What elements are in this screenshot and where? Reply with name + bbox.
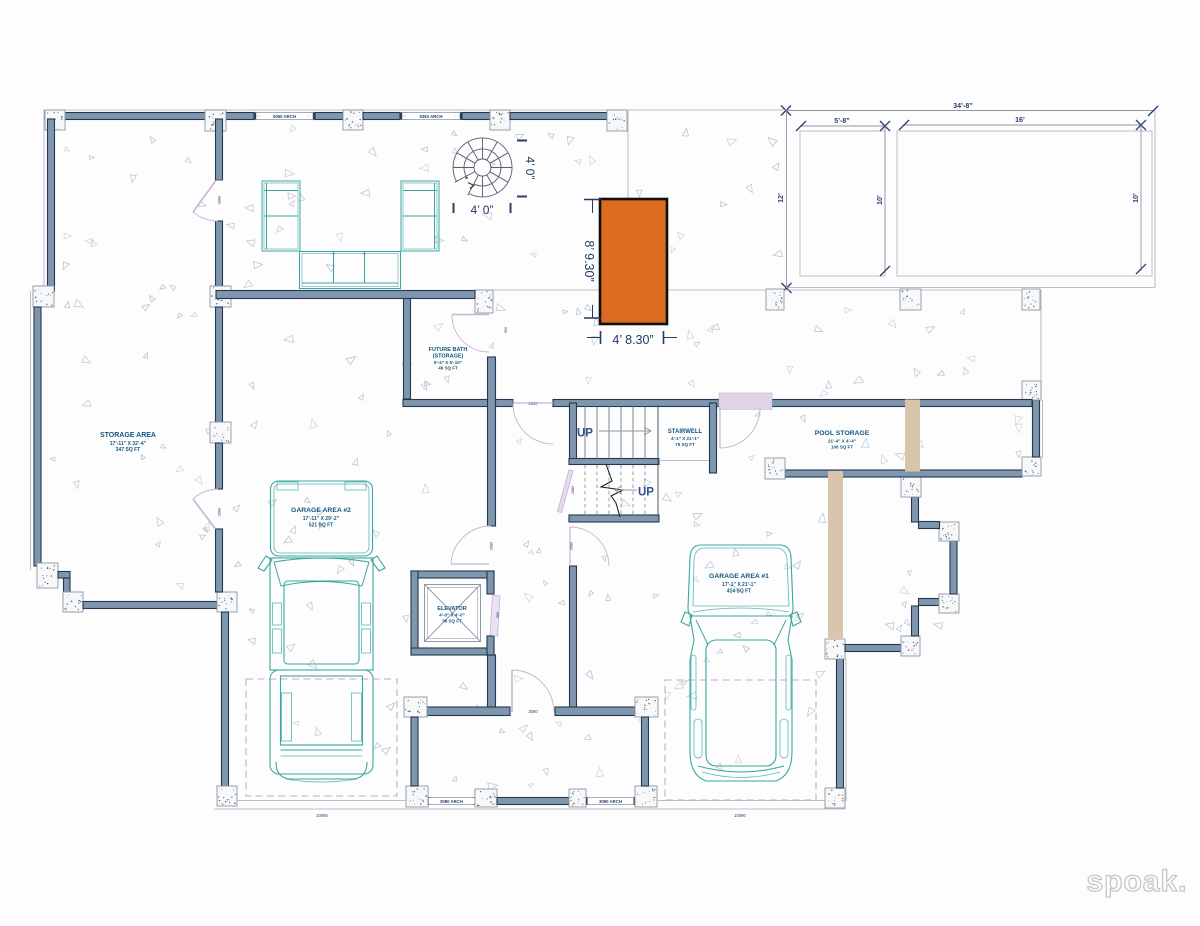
svg-text:17’-11” X 29’-2”: 17’-11” X 29’-2” [303, 516, 340, 522]
svg-text:UP: UP [638, 487, 654, 499]
svg-text:36 SQ FT: 36 SQ FT [442, 619, 462, 624]
svg-text:3080 ARCH: 3080 ARCH [440, 799, 463, 804]
svg-text:8’ 9.30”: 8’ 9.30” [582, 240, 596, 281]
svg-text:3090 ARCH: 3090 ARCH [599, 799, 622, 804]
svg-text:5383 ARCH: 5383 ARCH [419, 114, 442, 119]
svg-text:16’: 16’ [1015, 117, 1025, 124]
svg-text:GARAGE AREA #1: GARAGE AREA #1 [709, 573, 769, 580]
svg-text:spoak.: spoak. [1086, 865, 1187, 898]
svg-text:75 SQ FT: 75 SQ FT [675, 442, 695, 447]
svg-text:10090: 10090 [734, 813, 746, 818]
svg-text:4’-1” X 21’-1”: 4’-1” X 21’-1” [671, 436, 699, 441]
svg-text:414 SQ FT: 414 SQ FT [727, 589, 751, 595]
svg-text:4’ 8.30”: 4’ 8.30” [612, 333, 653, 347]
svg-text:521 SQ FT: 521 SQ FT [309, 523, 333, 529]
svg-text:2680: 2680 [218, 508, 222, 516]
svg-text:10’: 10’ [877, 195, 884, 205]
svg-text:4’-0” X 4’-0”: 4’-0” X 4’-0” [439, 613, 465, 618]
svg-text:900: 900 [504, 327, 508, 333]
svg-text:STORAGE AREA: STORAGE AREA [100, 432, 156, 439]
svg-text:GARAGE AREA #2: GARAGE AREA #2 [291, 507, 351, 514]
svg-text:FUTURE BATH: FUTURE BATH [429, 347, 468, 353]
svg-text:ELEVATOR: ELEVATOR [437, 606, 467, 612]
svg-text:5’-8”: 5’-8” [834, 118, 850, 125]
svg-text:347 SQ FT: 347 SQ FT [116, 447, 140, 453]
svg-text:3080: 3080 [528, 709, 538, 714]
svg-text:2880: 2880 [218, 196, 222, 204]
svg-text:34’-8”: 34’-8” [953, 103, 972, 110]
svg-text:2680: 2680 [571, 486, 575, 494]
svg-text:21’-4” X 4’-4”: 21’-4” X 4’-4” [828, 439, 856, 444]
svg-text:2680: 2680 [490, 542, 494, 550]
svg-text:10’: 10’ [1133, 193, 1140, 203]
svg-text:106 SQ FT: 106 SQ FT [831, 445, 853, 450]
svg-text:POOL STORAGE: POOL STORAGE [815, 430, 870, 437]
svg-text:4’ 0”: 4’ 0” [471, 203, 494, 217]
svg-text:17’-1” X 21’-1”: 17’-1” X 21’-1” [722, 582, 756, 588]
svg-text:2680: 2680 [570, 542, 574, 550]
svg-text:960: 960 [496, 612, 500, 618]
svg-text:10090: 10090 [316, 813, 328, 818]
svg-text:(STORAGE): (STORAGE) [433, 354, 464, 360]
svg-text:4’ 0”: 4’ 0” [523, 157, 537, 180]
svg-text:49 SQ FT: 49 SQ FT [438, 366, 458, 371]
svg-text:12’: 12’ [778, 193, 785, 203]
svg-text:UP: UP [577, 428, 593, 440]
svg-text:STAIRWELL: STAIRWELL [668, 429, 703, 435]
svg-text:9’-4” X 5’-10”: 9’-4” X 5’-10” [434, 360, 462, 365]
svg-text:5050 ARCH: 5050 ARCH [273, 114, 296, 119]
